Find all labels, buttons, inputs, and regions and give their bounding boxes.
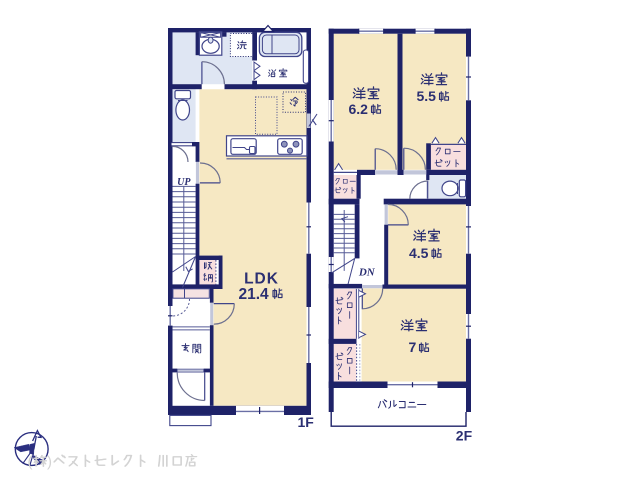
svg-text:2F: 2F [456,428,473,444]
svg-text:7: 7 [409,339,417,355]
svg-text:1F: 1F [298,414,315,430]
svg-text:21.4: 21.4 [239,286,270,303]
svg-text:6.2: 6.2 [349,101,369,117]
svg-text:4.5: 4.5 [409,245,429,261]
svg-text:DN: DN [358,267,376,279]
svg-text:5.5: 5.5 [417,88,437,104]
svg-text:): ) [47,454,52,471]
svg-text:(: ( [28,454,33,471]
